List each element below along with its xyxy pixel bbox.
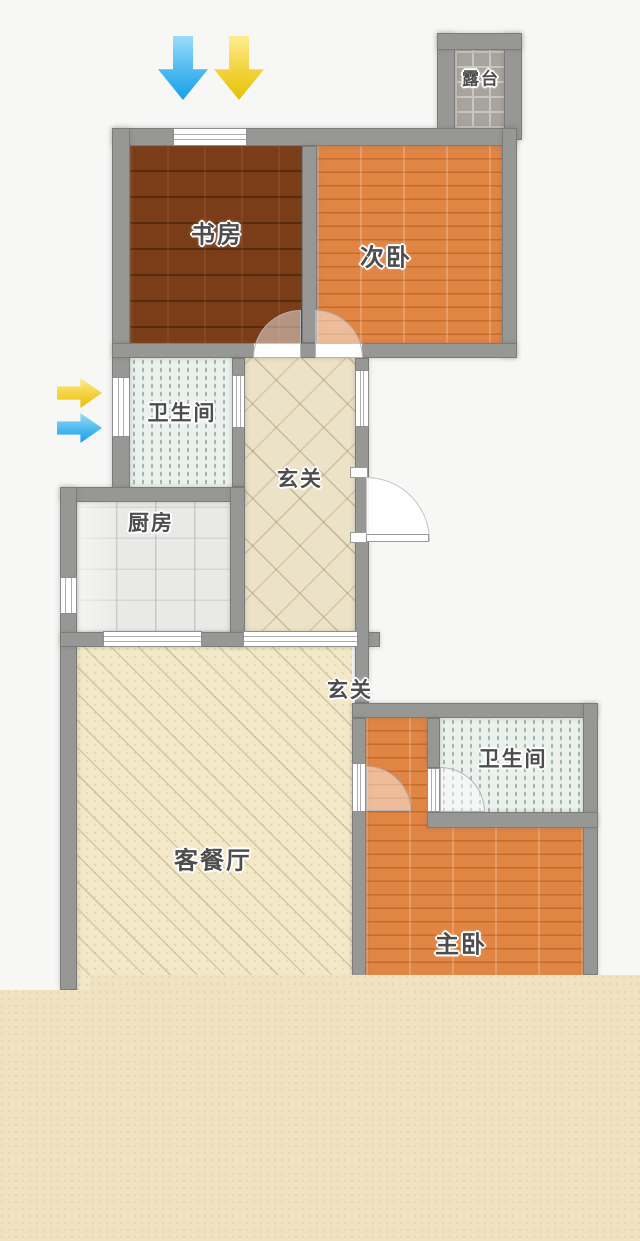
label-hall2: 玄关 bbox=[327, 674, 373, 704]
wall-terrace-top bbox=[437, 33, 522, 50]
window-top-study bbox=[173, 128, 247, 146]
arrow-down-yellow-icon bbox=[214, 36, 264, 100]
wall-bathroom2-bottom bbox=[427, 812, 598, 828]
arrow-right-yellow-icon bbox=[57, 378, 102, 408]
window-kitchen-left bbox=[60, 577, 77, 614]
door-strip-master bbox=[352, 763, 366, 812]
wall-left-upper bbox=[112, 128, 130, 495]
entrance-door-arc bbox=[366, 477, 430, 541]
label-bathroom2: 卫生间 bbox=[479, 743, 548, 773]
door-strip-bathroom2 bbox=[427, 768, 440, 812]
label-terrace: 露台 bbox=[462, 65, 500, 90]
bottom-mask bbox=[0, 990, 640, 1241]
wall-right-upper bbox=[502, 128, 517, 358]
label-study: 书房 bbox=[191, 215, 243, 250]
wall-right-lower bbox=[583, 703, 598, 975]
entrance-door-leaf bbox=[366, 534, 429, 542]
label-kitchen: 厨房 bbox=[128, 507, 174, 537]
opening-kitchen-living bbox=[103, 631, 202, 647]
hall1-floor bbox=[245, 358, 355, 632]
window-hall1-right bbox=[355, 370, 369, 427]
wall-master-top bbox=[352, 703, 598, 718]
label-master: 主卧 bbox=[435, 925, 487, 960]
label-hall1: 玄关 bbox=[277, 463, 323, 493]
wall-kitchen-right bbox=[230, 487, 245, 647]
label-living: 客餐厅 bbox=[174, 841, 252, 876]
wall-left-lower bbox=[60, 487, 77, 990]
arrow-down-blue-icon bbox=[158, 36, 208, 100]
wall-living-master bbox=[352, 718, 366, 990]
opening-hall1-living bbox=[243, 631, 358, 647]
arrow-right-blue-icon bbox=[57, 413, 102, 443]
floor-plan: 露台 书房 次卧 卫生间 玄关 厨房 玄关 客餐厅 卫生间 主卧 bbox=[0, 0, 640, 1241]
door-strip-bathroom1 bbox=[232, 375, 245, 428]
wall-bathroom2-left bbox=[427, 718, 440, 768]
living-floor bbox=[77, 647, 352, 990]
label-bedroom2: 次卧 bbox=[360, 238, 412, 273]
wall-kitchen-top bbox=[60, 487, 245, 502]
window-bathroom1-left bbox=[112, 377, 130, 437]
label-bathroom1: 卫生间 bbox=[148, 397, 217, 427]
